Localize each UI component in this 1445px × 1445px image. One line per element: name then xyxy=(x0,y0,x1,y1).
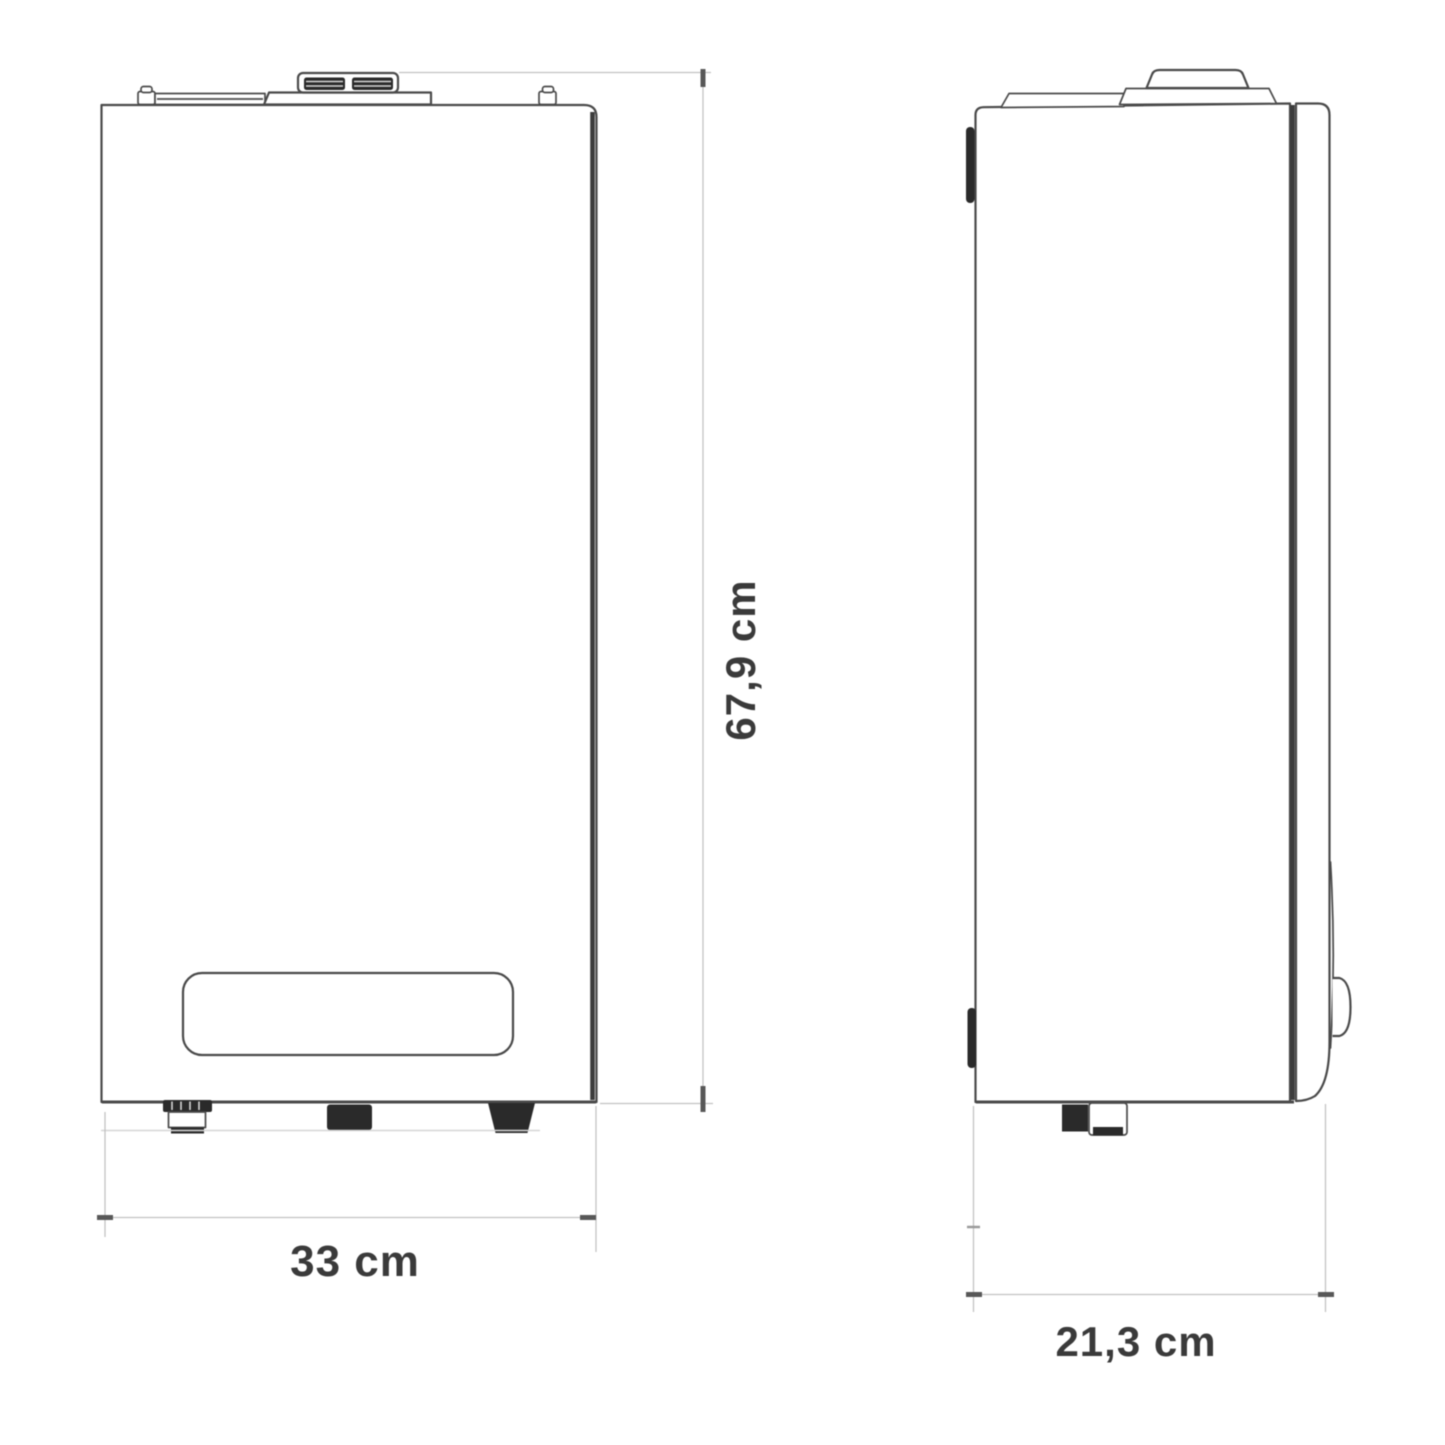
depth-dimension: 21,3 cm xyxy=(966,1104,1334,1365)
mounting-screw-left xyxy=(138,92,155,105)
top-plate-left xyxy=(1001,94,1124,108)
flue-vent-left xyxy=(304,78,345,91)
wall-bracket-top xyxy=(966,127,975,203)
pipe-connection-middle xyxy=(327,1105,372,1131)
flue-vent-right xyxy=(352,78,393,91)
width-label: 33 cm xyxy=(290,1237,420,1286)
pipe-connection-right xyxy=(488,1103,535,1133)
valve-body xyxy=(169,1112,206,1128)
mounting-screw-right-cap xyxy=(543,87,554,93)
flue-base-plate xyxy=(264,93,431,105)
depth-label: 21,3 cm xyxy=(1055,1318,1216,1365)
front-panel-strip xyxy=(1296,104,1330,1102)
front-cabinet-outline xyxy=(102,105,597,1102)
wall-bracket-bottom xyxy=(968,1008,977,1068)
diagram-canvas: 67,9 cm 33 cm xyxy=(0,0,1445,1445)
side-body-outline xyxy=(976,104,1291,1103)
valve-cap xyxy=(163,1100,212,1112)
side-pipe-clamp-band xyxy=(1093,1127,1123,1136)
mounting-screw-left-cap xyxy=(141,87,152,93)
bottom-connections-front xyxy=(163,1100,535,1134)
flue-terminal-side xyxy=(1147,70,1249,88)
side-pipe-stub xyxy=(1062,1105,1088,1132)
door-clip xyxy=(1333,978,1351,1036)
side-view: 21,3 cm xyxy=(966,70,1351,1365)
boiler-dimension-diagram: 67,9 cm 33 cm xyxy=(0,0,1445,1445)
mounting-screw-right xyxy=(539,92,556,105)
front-view: 67,9 cm 33 cm xyxy=(97,69,764,1286)
bottom-connection-side xyxy=(1062,1103,1127,1136)
top-plate-right xyxy=(1120,89,1277,105)
control-panel xyxy=(183,973,513,1055)
height-label: 67,9 cm xyxy=(717,579,764,740)
